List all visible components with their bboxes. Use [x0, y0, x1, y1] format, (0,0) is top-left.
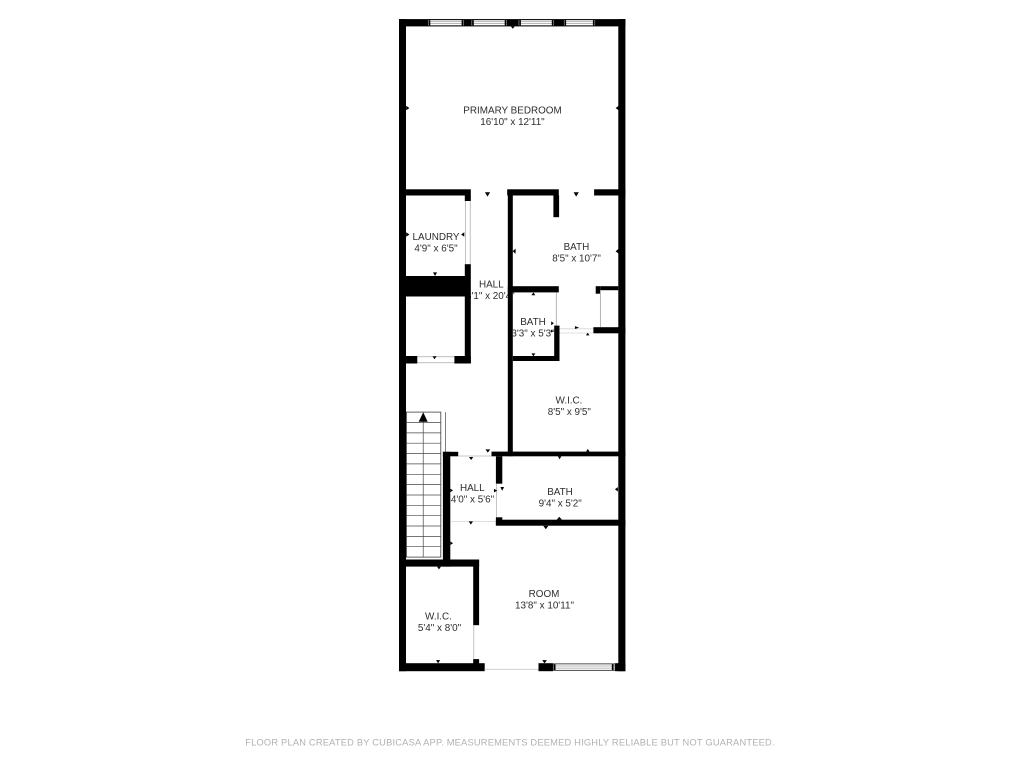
svg-text:16'10" x 12'11": 16'10" x 12'11" — [480, 117, 545, 128]
svg-text:BATH: BATH — [520, 317, 546, 328]
svg-text:4'0" x 5'6": 4'0" x 5'6" — [451, 495, 495, 506]
svg-text:9'4" x 5'2": 9'4" x 5'2" — [539, 498, 583, 509]
svg-text:BATH: BATH — [547, 487, 573, 498]
svg-text:8'5" x 9'5": 8'5" x 9'5" — [548, 407, 592, 418]
svg-text:HALL: HALL — [479, 279, 504, 290]
svg-text:FLOOR PLAN CREATED BY CUBICASA: FLOOR PLAN CREATED BY CUBICASA APP. MEAS… — [245, 738, 775, 748]
svg-text:ROOM: ROOM — [529, 589, 560, 600]
svg-text:5'4" x 8'0": 5'4" x 8'0" — [418, 623, 462, 634]
svg-text:W.I.C.: W.I.C. — [556, 395, 583, 406]
svg-text:PRIMARY BEDROOM: PRIMARY BEDROOM — [463, 106, 561, 117]
svg-text:3'1" x 20'4": 3'1" x 20'4" — [466, 291, 515, 302]
svg-text:W.I.C.: W.I.C. — [425, 611, 452, 622]
svg-text:4'9" x 6'5": 4'9" x 6'5" — [414, 243, 458, 254]
svg-text:HALL: HALL — [460, 483, 485, 494]
svg-text:LAUNDRY: LAUNDRY — [412, 232, 459, 243]
svg-text:3'3" x 5'3": 3'3" x 5'3" — [511, 329, 555, 340]
svg-text:BATH: BATH — [564, 242, 590, 253]
svg-text:8'5" x 10'7": 8'5" x 10'7" — [552, 253, 601, 264]
svg-text:13'8" x 10'11": 13'8" x 10'11" — [515, 600, 574, 611]
